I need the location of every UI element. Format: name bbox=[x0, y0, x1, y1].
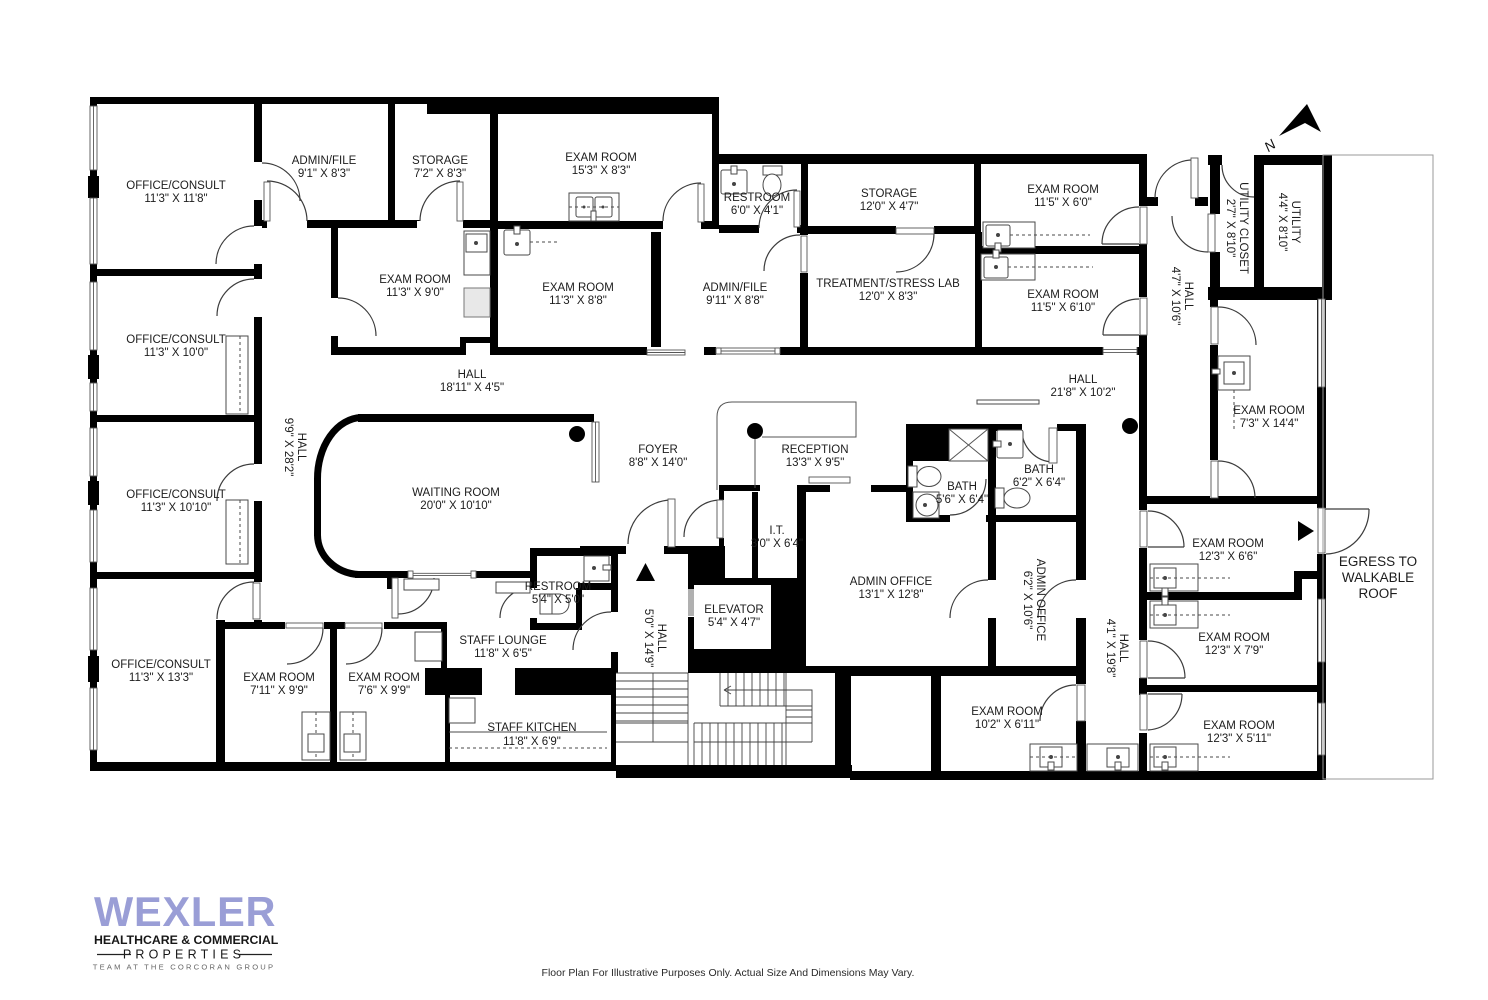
svg-text:EGRESS TO: EGRESS TO bbox=[1339, 554, 1417, 569]
svg-text:HALL: HALL bbox=[458, 369, 487, 381]
svg-text:EXAM ROOM: EXAM ROOM bbox=[379, 274, 451, 286]
svg-text:UTILITY: UTILITY bbox=[1289, 201, 1301, 244]
svg-text:11'3" X 8'8": 11'3" X 8'8" bbox=[549, 295, 607, 307]
svg-text:7'11" X 9'9": 7'11" X 9'9" bbox=[250, 685, 308, 697]
svg-text:9'9" X 28'2": 9'9" X 28'2" bbox=[282, 418, 294, 477]
svg-text:4'1" X 19'8": 4'1" X 19'8" bbox=[1104, 619, 1116, 678]
svg-text:I.T.: I.T. bbox=[769, 525, 784, 537]
svg-text:HALL: HALL bbox=[655, 624, 667, 653]
svg-text:OFFICE/CONSULT: OFFICE/CONSULT bbox=[111, 659, 210, 671]
svg-text:EXAM ROOM: EXAM ROOM bbox=[1233, 405, 1305, 417]
svg-text:11'3" X 10'10": 11'3" X 10'10" bbox=[141, 502, 212, 514]
svg-text:9'11" X 8'8": 9'11" X 8'8" bbox=[706, 295, 764, 307]
svg-text:ADMIN OFFICE: ADMIN OFFICE bbox=[850, 576, 933, 588]
svg-text:ADMIN OFFICE: ADMIN OFFICE bbox=[1034, 559, 1046, 642]
svg-text:11'8" X 6'5": 11'8" X 6'5" bbox=[474, 648, 532, 660]
svg-text:BATH: BATH bbox=[947, 481, 977, 493]
svg-text:EXAM ROOM: EXAM ROOM bbox=[1203, 720, 1275, 732]
svg-text:12'3" X 5'11": 12'3" X 5'11" bbox=[1207, 733, 1271, 745]
svg-text:ELEVATOR: ELEVATOR bbox=[704, 604, 763, 616]
svg-text:HEALTHCARE & COMMERCIAL: HEALTHCARE & COMMERCIAL bbox=[94, 933, 279, 947]
svg-text:UTILITY CLOSET: UTILITY CLOSET bbox=[1237, 182, 1249, 274]
svg-text:7'3" X 14'4": 7'3" X 14'4" bbox=[1240, 418, 1299, 430]
svg-text:18'11" X 4'5": 18'11" X 4'5" bbox=[440, 382, 504, 394]
svg-text:12'3" X 6'6": 12'3" X 6'6" bbox=[1199, 551, 1258, 563]
svg-text:12'0" X 8'3": 12'0" X 8'3" bbox=[859, 291, 918, 303]
svg-text:OFFICE/CONSULT: OFFICE/CONSULT bbox=[126, 334, 225, 346]
svg-text:ROOF: ROOF bbox=[1359, 586, 1398, 601]
svg-text:7'6" X 9'9": 7'6" X 9'9" bbox=[358, 685, 410, 697]
svg-text:OFFICE/CONSULT: OFFICE/CONSULT bbox=[126, 180, 225, 192]
svg-text:6'2" X 6'4": 6'2" X 6'4" bbox=[1013, 477, 1065, 489]
svg-text:12'0" X 4'7": 12'0" X 4'7" bbox=[860, 201, 919, 213]
svg-text:11'3" X 13'3": 11'3" X 13'3" bbox=[129, 672, 193, 684]
svg-text:EXAM ROOM: EXAM ROOM bbox=[971, 706, 1043, 718]
svg-text:2'7" X 8'10": 2'7" X 8'10" bbox=[1224, 199, 1236, 258]
svg-text:15'3" X 8'3": 15'3" X 8'3" bbox=[572, 165, 631, 177]
svg-text:Floor Plan For Illustrative Pu: Floor Plan For Illustrative Purposes Onl… bbox=[542, 967, 915, 979]
svg-text:5'6" X 6'4": 5'6" X 6'4" bbox=[936, 494, 988, 506]
svg-text:HALL: HALL bbox=[295, 433, 307, 462]
svg-text:6'2" X 10'6": 6'2" X 10'6" bbox=[1021, 571, 1033, 630]
svg-text:8'8" X 14'0": 8'8" X 14'0" bbox=[629, 457, 688, 469]
svg-text:EXAM ROOM: EXAM ROOM bbox=[243, 672, 315, 684]
svg-text:PROPERTIES: PROPERTIES bbox=[123, 948, 245, 962]
svg-text:FOYER: FOYER bbox=[638, 444, 678, 456]
svg-text:EXAM ROOM: EXAM ROOM bbox=[542, 282, 614, 294]
svg-text:TEAM AT THE CORCORAN GROUP: TEAM AT THE CORCORAN GROUP bbox=[93, 963, 276, 972]
svg-text:WEXLER: WEXLER bbox=[94, 888, 276, 935]
svg-text:5'4" X 5'0": 5'4" X 5'0" bbox=[532, 594, 584, 606]
svg-text:5'4" X 4'7": 5'4" X 4'7" bbox=[708, 617, 760, 629]
svg-text:11'3" X 11'8": 11'3" X 11'8" bbox=[144, 193, 207, 205]
svg-text:RESTROOM: RESTROOM bbox=[724, 192, 790, 204]
svg-text:11'5" X 6'0": 11'5" X 6'0" bbox=[1034, 197, 1092, 209]
svg-text:12'3" X 7'9": 12'3" X 7'9" bbox=[1205, 645, 1264, 657]
svg-text:TREATMENT/STRESS LAB: TREATMENT/STRESS LAB bbox=[816, 278, 960, 290]
svg-text:EXAM ROOM: EXAM ROOM bbox=[1027, 289, 1099, 301]
svg-text:EXAM ROOM: EXAM ROOM bbox=[1198, 632, 1270, 644]
svg-text:5'0" X 14'9": 5'0" X 14'9" bbox=[642, 609, 654, 668]
svg-text:WALKABLE: WALKABLE bbox=[1342, 570, 1414, 585]
svg-text:6'0" X 4'1": 6'0" X 4'1" bbox=[731, 205, 783, 217]
svg-text:21'8" X 10'2": 21'8" X 10'2" bbox=[1051, 387, 1116, 399]
svg-text:ADMIN/FILE: ADMIN/FILE bbox=[292, 155, 357, 167]
svg-text:3'0" X 6'4": 3'0" X 6'4" bbox=[751, 538, 803, 550]
svg-text:4'7" X 10'6": 4'7" X 10'6" bbox=[1169, 267, 1181, 326]
svg-text:HALL: HALL bbox=[1069, 374, 1098, 386]
svg-text:HALL: HALL bbox=[1117, 634, 1129, 663]
svg-text:HALL: HALL bbox=[1182, 282, 1194, 311]
svg-text:11'8" X 6'9": 11'8" X 6'9" bbox=[503, 736, 561, 748]
svg-text:13'1" X 12'8": 13'1" X 12'8" bbox=[859, 589, 924, 601]
svg-text:20'0" X 10'10": 20'0" X 10'10" bbox=[420, 500, 491, 512]
svg-text:OFFICE/CONSULT: OFFICE/CONSULT bbox=[126, 489, 225, 501]
svg-text:ADMIN/FILE: ADMIN/FILE bbox=[703, 282, 768, 294]
svg-text:STORAGE: STORAGE bbox=[861, 188, 917, 200]
svg-text:11'3" X 9'0": 11'3" X 9'0" bbox=[386, 287, 444, 299]
svg-text:7'2" X 8'3": 7'2" X 8'3" bbox=[414, 168, 466, 180]
svg-text:EXAM ROOM: EXAM ROOM bbox=[1192, 538, 1264, 550]
svg-text:EXAM ROOM: EXAM ROOM bbox=[565, 152, 637, 164]
svg-text:10'2" X 6'11": 10'2" X 6'11" bbox=[975, 719, 1039, 731]
svg-text:WAITING ROOM: WAITING ROOM bbox=[412, 487, 500, 499]
svg-text:RESTROOM: RESTROOM bbox=[525, 581, 591, 593]
svg-text:9'1" X 8'3": 9'1" X 8'3" bbox=[298, 168, 350, 180]
svg-text:EXAM ROOM: EXAM ROOM bbox=[348, 672, 420, 684]
svg-text:11'5" X 6'10": 11'5" X 6'10" bbox=[1031, 302, 1095, 314]
svg-text:STORAGE: STORAGE bbox=[412, 155, 468, 167]
svg-text:BATH: BATH bbox=[1024, 464, 1054, 476]
svg-text:RECEPTION: RECEPTION bbox=[781, 444, 848, 456]
svg-text:11'3" X 10'0": 11'3" X 10'0" bbox=[144, 347, 208, 359]
svg-text:13'3" X 9'5": 13'3" X 9'5" bbox=[786, 457, 845, 469]
svg-text:STAFF KITCHEN: STAFF KITCHEN bbox=[487, 722, 576, 734]
svg-text:4'4" X 8'10": 4'4" X 8'10" bbox=[1276, 193, 1288, 252]
svg-text:STAFF LOUNGE: STAFF LOUNGE bbox=[459, 635, 547, 647]
svg-text:EXAM ROOM: EXAM ROOM bbox=[1027, 184, 1099, 196]
